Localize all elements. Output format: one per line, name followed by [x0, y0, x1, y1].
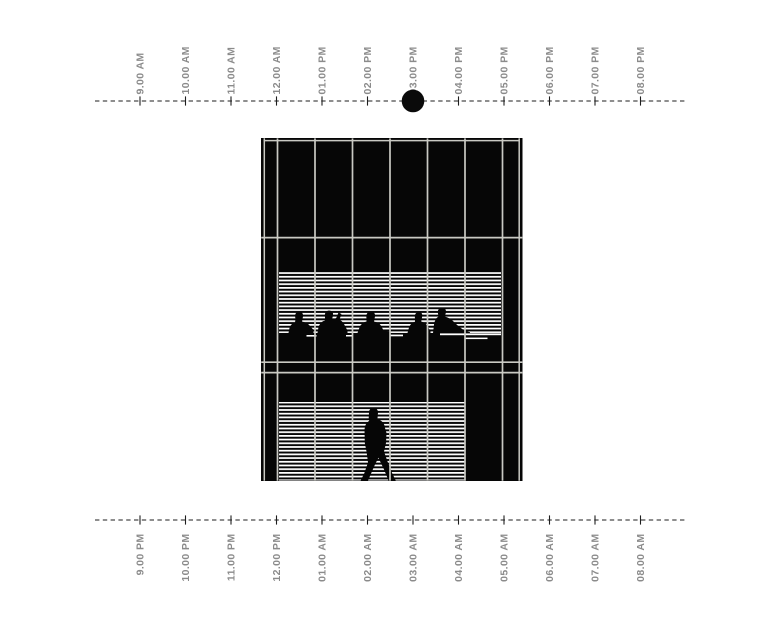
- time-label: 06.00 AM: [544, 534, 556, 582]
- time-label: 07.00 AM: [589, 534, 601, 582]
- time-label: 10.00 AM: [180, 46, 192, 94]
- time-label: 9.00 AM: [134, 52, 146, 94]
- building-elevation: [261, 138, 523, 481]
- time-label: 06.00 PM: [544, 46, 556, 94]
- top-timeline: 9.00 AM10.00 AM11.00 AM12.00 AM01.00 PM0…: [95, 46, 686, 112]
- time-label: 02.00 AM: [362, 534, 374, 582]
- time-label: 03.00 AM: [407, 534, 419, 582]
- time-label: 11.00 AM: [225, 47, 237, 95]
- time-label: 9.00 PM: [134, 534, 146, 576]
- time-label: 04.00 PM: [453, 46, 465, 94]
- time-label: 12.00 AM: [271, 46, 283, 94]
- time-label: 03.00 PM: [407, 46, 419, 94]
- time-marker-dot: [402, 90, 425, 113]
- illustration-canvas: 9.00 AM10.00 AM11.00 AM12.00 AM01.00 PM0…: [0, 0, 780, 624]
- time-label: 05.00 PM: [498, 46, 510, 94]
- time-label: 05.00 AM: [498, 534, 510, 582]
- time-label: 08.00 PM: [635, 46, 647, 94]
- time-label: 01.00 PM: [316, 46, 328, 94]
- bottom-timeline: 9.00 PM10.00 PM11.00 PM12.00 PM01.00 AM0…: [95, 515, 686, 581]
- time-label: 11.00 PM: [225, 534, 237, 582]
- time-label: 10.00 PM: [180, 534, 192, 582]
- time-label: 08.00 AM: [635, 534, 647, 582]
- time-label: 12.00 PM: [271, 534, 283, 582]
- time-label: 04.00 AM: [453, 534, 465, 582]
- scene: 9.00 AM10.00 AM11.00 AM12.00 AM01.00 PM0…: [0, 0, 780, 624]
- time-label: 07.00 PM: [589, 46, 601, 94]
- time-label: 01.00 AM: [316, 534, 328, 582]
- time-label: 02.00 PM: [362, 46, 374, 94]
